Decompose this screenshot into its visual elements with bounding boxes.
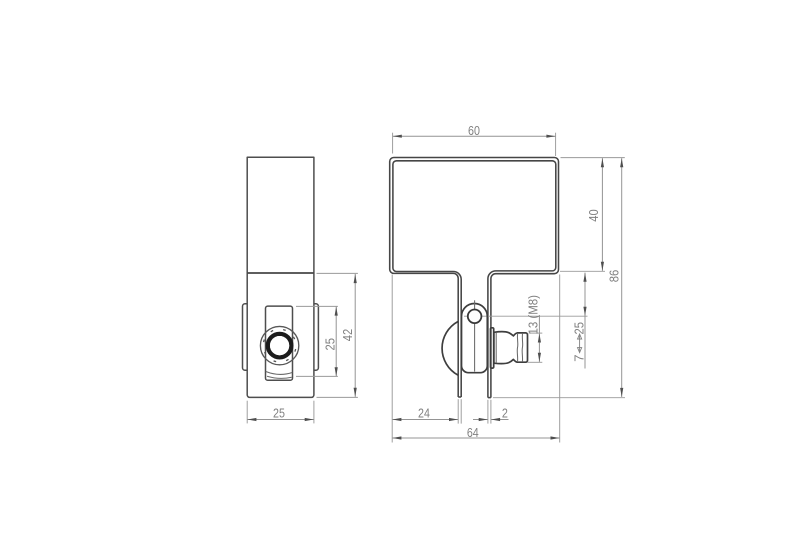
svg-text:64: 64	[467, 425, 479, 440]
svg-text:25: 25	[273, 406, 285, 421]
svg-text:13 (M8): 13 (M8)	[525, 295, 540, 335]
svg-text:7: 7	[572, 355, 587, 362]
svg-text:25: 25	[572, 322, 587, 335]
svg-text:40: 40	[586, 209, 601, 222]
svg-text:24: 24	[418, 406, 430, 421]
svg-text:60: 60	[468, 123, 480, 138]
svg-text:25: 25	[322, 338, 337, 351]
svg-text:86: 86	[606, 270, 621, 283]
svg-text:2: 2	[502, 406, 508, 421]
svg-text:42: 42	[340, 329, 355, 342]
